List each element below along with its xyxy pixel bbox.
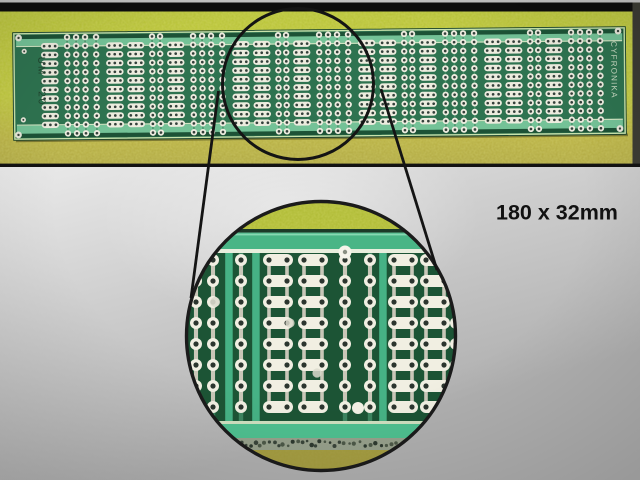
svg-text:180 x 32mm: 180 x 32mm	[496, 201, 618, 225]
